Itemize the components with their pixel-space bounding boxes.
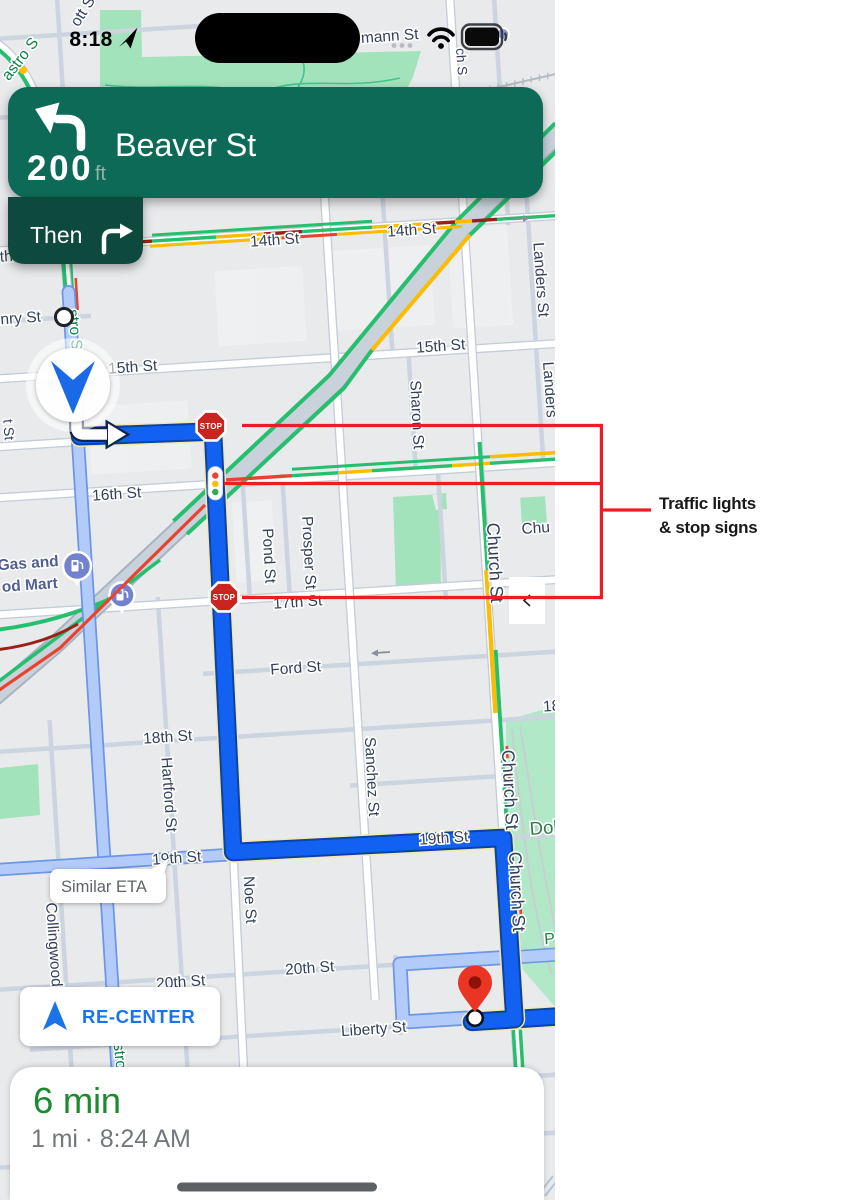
svg-text:Church St: Church St <box>483 522 507 603</box>
svg-text:Noe St: Noe St <box>240 876 259 925</box>
svg-text:6 min: 6 min <box>33 1080 121 1121</box>
svg-text:18: 18 <box>542 697 560 715</box>
svg-text:STOP: STOP <box>213 593 236 602</box>
svg-text:20th St: 20th St <box>285 958 336 978</box>
svg-text:Beaver St: Beaver St <box>115 127 256 163</box>
svg-text:200: 200 <box>27 149 93 188</box>
svg-text:Traffic lights: Traffic lights <box>659 494 756 513</box>
svg-text:P: P <box>544 931 556 949</box>
svg-text:Sharon St: Sharon St <box>406 380 427 450</box>
svg-text:& stop signs: & stop signs <box>659 518 757 537</box>
svg-text:19th St: 19th St <box>419 828 470 848</box>
svg-text:Then: Then <box>30 222 82 248</box>
svg-text:STOP: STOP <box>200 422 223 431</box>
svg-text:1 mi · 8:24 AM: 1 mi · 8:24 AM <box>31 1125 191 1153</box>
svg-text:Church St: Church St <box>505 851 529 932</box>
svg-text:14th St: 14th St <box>250 230 301 250</box>
svg-text:Church St: Church St <box>498 749 522 830</box>
svg-text:Ford St: Ford St <box>270 658 323 679</box>
svg-text:t St: t St <box>0 419 17 441</box>
svg-text:Chu: Chu <box>521 519 551 538</box>
svg-text:8:18: 8:18 <box>69 28 112 51</box>
svg-text:nry St: nry St <box>0 309 42 329</box>
svg-text:Pond St: Pond St <box>259 528 279 585</box>
svg-text:18th St: 18th St <box>143 727 194 747</box>
svg-text:Similar ETA: Similar ETA <box>61 878 147 896</box>
svg-text:16th St: 16th St <box>92 484 143 504</box>
svg-text:17th St: 17th St <box>273 592 324 612</box>
svg-text:ch S: ch S <box>453 48 470 76</box>
svg-text:15th St: 15th St <box>416 336 467 356</box>
svg-text:14th St: 14th St <box>387 220 438 240</box>
svg-text:RE-CENTER: RE-CENTER <box>82 1006 195 1027</box>
svg-text:Dol: Dol <box>529 816 558 839</box>
svg-text:ft: ft <box>95 163 107 185</box>
